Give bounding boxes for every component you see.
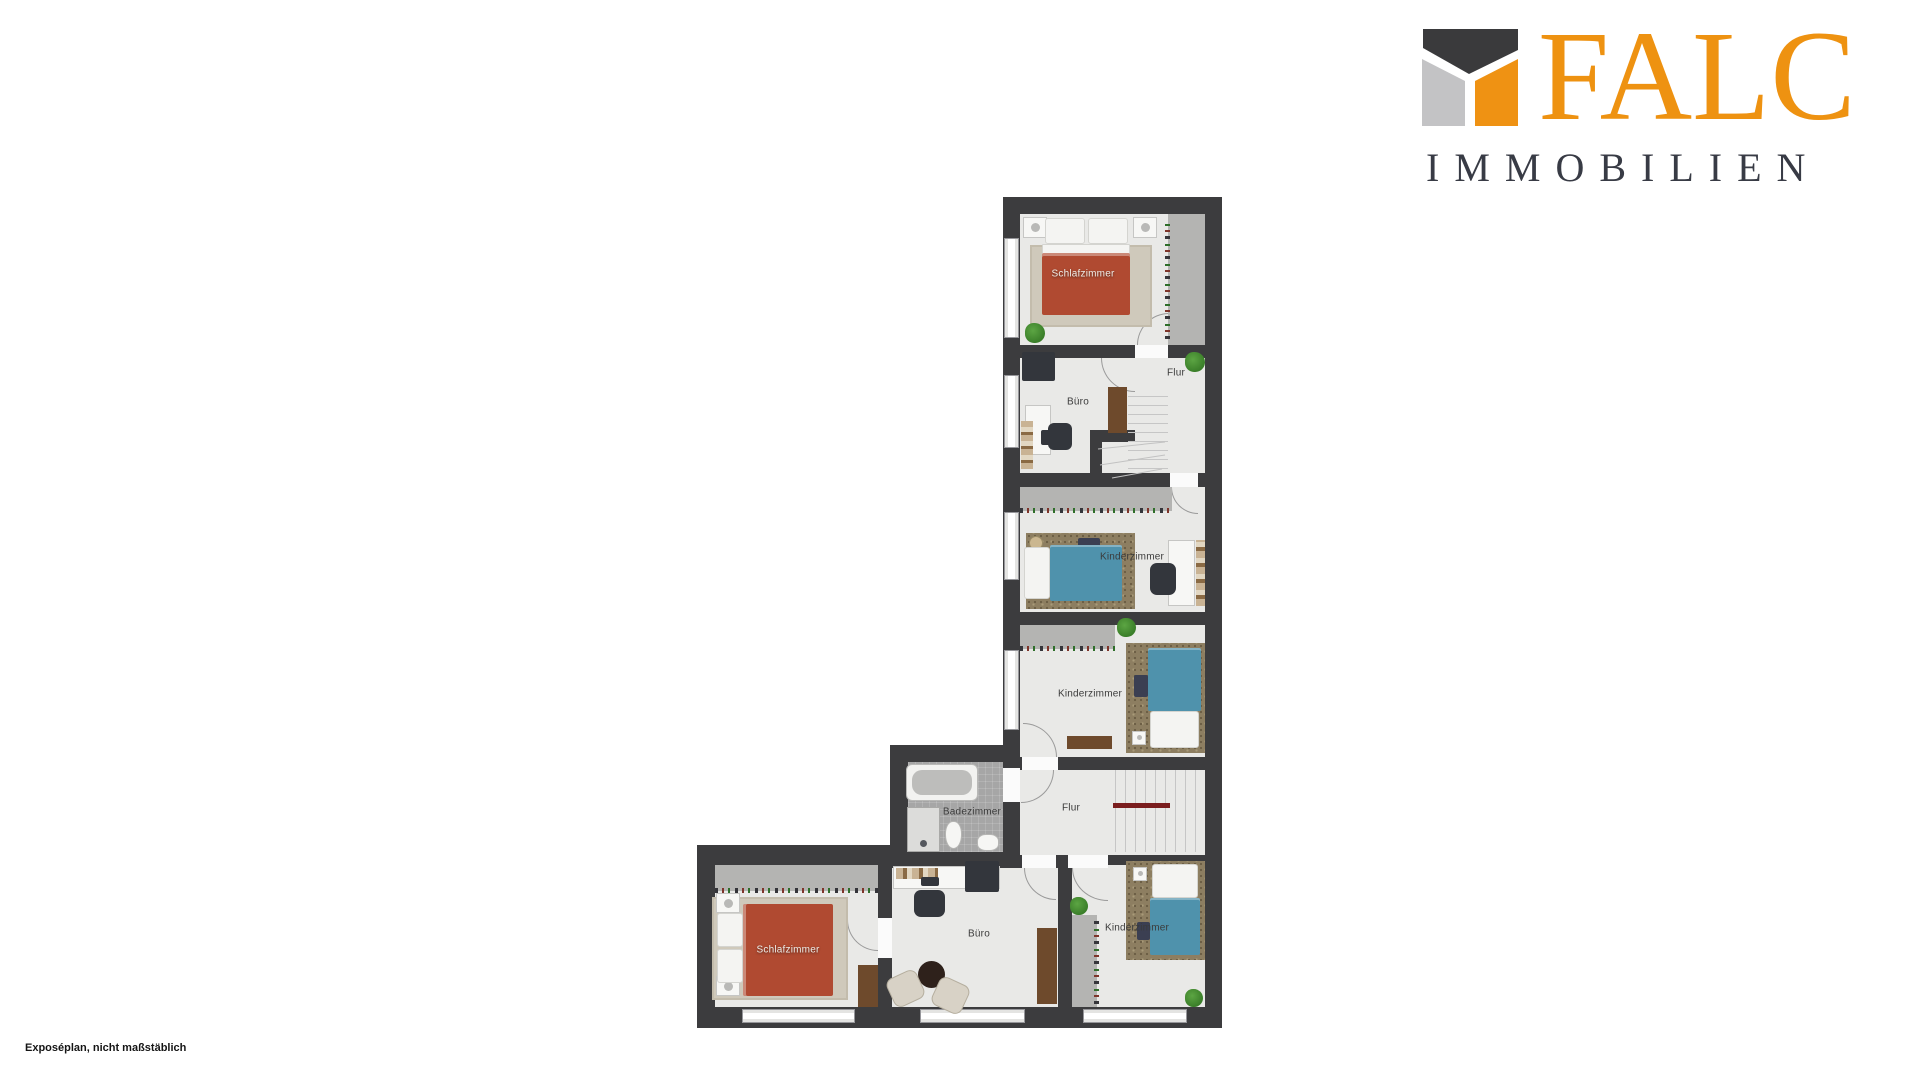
bathtub-basin [912,770,972,795]
door-schlafzimmer-top [1135,345,1168,358]
cabinet [858,965,878,1007]
shelf [1196,540,1205,606]
window-kinderzimmer-1 [1004,512,1019,580]
keyboard [921,877,939,886]
stair-banister [1108,387,1127,433]
printer [965,861,999,892]
room-label-buero-top: Büro [1067,397,1089,408]
wardrobe-contents [1020,646,1115,651]
plan-disclaimer: Exposéplan, nicht maßstäblich [25,1042,186,1054]
staircase-upper [1128,388,1168,469]
shower [907,807,940,852]
bed-pillow [1150,711,1199,748]
plant-icon [1185,989,1203,1007]
bed-pillow [1152,864,1198,898]
plant-icon [1185,352,1205,372]
bed-pillow [717,949,743,983]
door-kinderzimmer-3 [1068,855,1108,868]
bed-pillow [1024,547,1050,599]
room-label-buero-bottom: Büro [968,929,990,940]
page: { "logo": { "brand": "FALC", "subtitle":… [0,0,1920,1080]
office-chair [1150,563,1176,595]
cabinet [1037,928,1057,1004]
room-label-badezimmer: Badezimmer [943,807,1001,818]
window-schlafzimmer-bottom [742,1009,855,1023]
logo-subtitle-text: IMMOBILIEN [1422,144,1892,191]
office-chair [1048,423,1072,450]
door-schlafzimmer-bottom [878,918,892,958]
nightstand [1023,217,1047,238]
single-bed [1148,648,1201,711]
wardrobe-contents [1020,508,1172,513]
bed-pillow [1045,218,1085,244]
plant-icon [1025,323,1045,343]
room-label-flur-bottom: Flur [1062,803,1080,814]
window-kinderzimmer-3 [1083,1009,1187,1023]
floor-plan: Schlafzimmer Büro Flur Kinderzimmer Kind… [697,197,1222,1028]
room-label-kinderzimmer-2: Kinderzimmer [1058,689,1122,700]
door-kinderzimmer-2 [1022,757,1058,770]
room-label-schlafzimmer-top: Schlafzimmer [1052,269,1115,280]
toilet [945,821,962,849]
shelf [1021,421,1033,469]
office-chair [914,890,945,917]
room-label-kinderzimmer-3: Kinderzimmer [1105,923,1169,934]
room-label-schlafzimmer-bottom: Schlafzimmer [757,945,820,956]
wardrobe-contents [1094,918,1099,1004]
bed-pillow [717,913,743,947]
falc-roof-icon [1422,26,1522,126]
door-buero-bottom [1022,855,1056,868]
nightstand [1133,217,1157,238]
play-table [1132,731,1146,745]
staircase-lower [1115,770,1200,852]
plant-icon [1070,897,1088,915]
play-table [1133,867,1147,881]
window-buero-bottom [920,1009,1025,1023]
room-label-kinderzimmer-1: Kinderzimmer [1100,552,1164,563]
window-buero-top [1004,375,1019,448]
falc-logo: FALC IMMOBILIEN [1422,26,1892,191]
door-kinderzimmer-1 [1170,473,1198,487]
toy-box [1134,675,1148,697]
dresser [1067,736,1112,749]
falc-logo-row: FALC [1422,26,1892,126]
plant-icon [1117,618,1136,637]
wardrobe-contents [1165,219,1170,339]
bathtub [906,764,978,801]
window-kinderzimmer-2 [1004,650,1019,730]
double-bed [1042,253,1130,315]
logo-brand-text: FALC [1538,26,1856,126]
window-schlafzimmer-top [1004,238,1019,338]
bed-pillow [1088,218,1128,244]
monitor [1041,430,1050,445]
printer [1022,352,1055,381]
door-badezimmer [1003,768,1020,802]
nightstand [716,893,740,913]
room-label-flur-top: Flur [1167,368,1185,379]
stair-handrail [1113,803,1170,808]
sink [977,834,999,851]
wardrobe [1168,214,1205,345]
shower-drain [920,840,927,847]
